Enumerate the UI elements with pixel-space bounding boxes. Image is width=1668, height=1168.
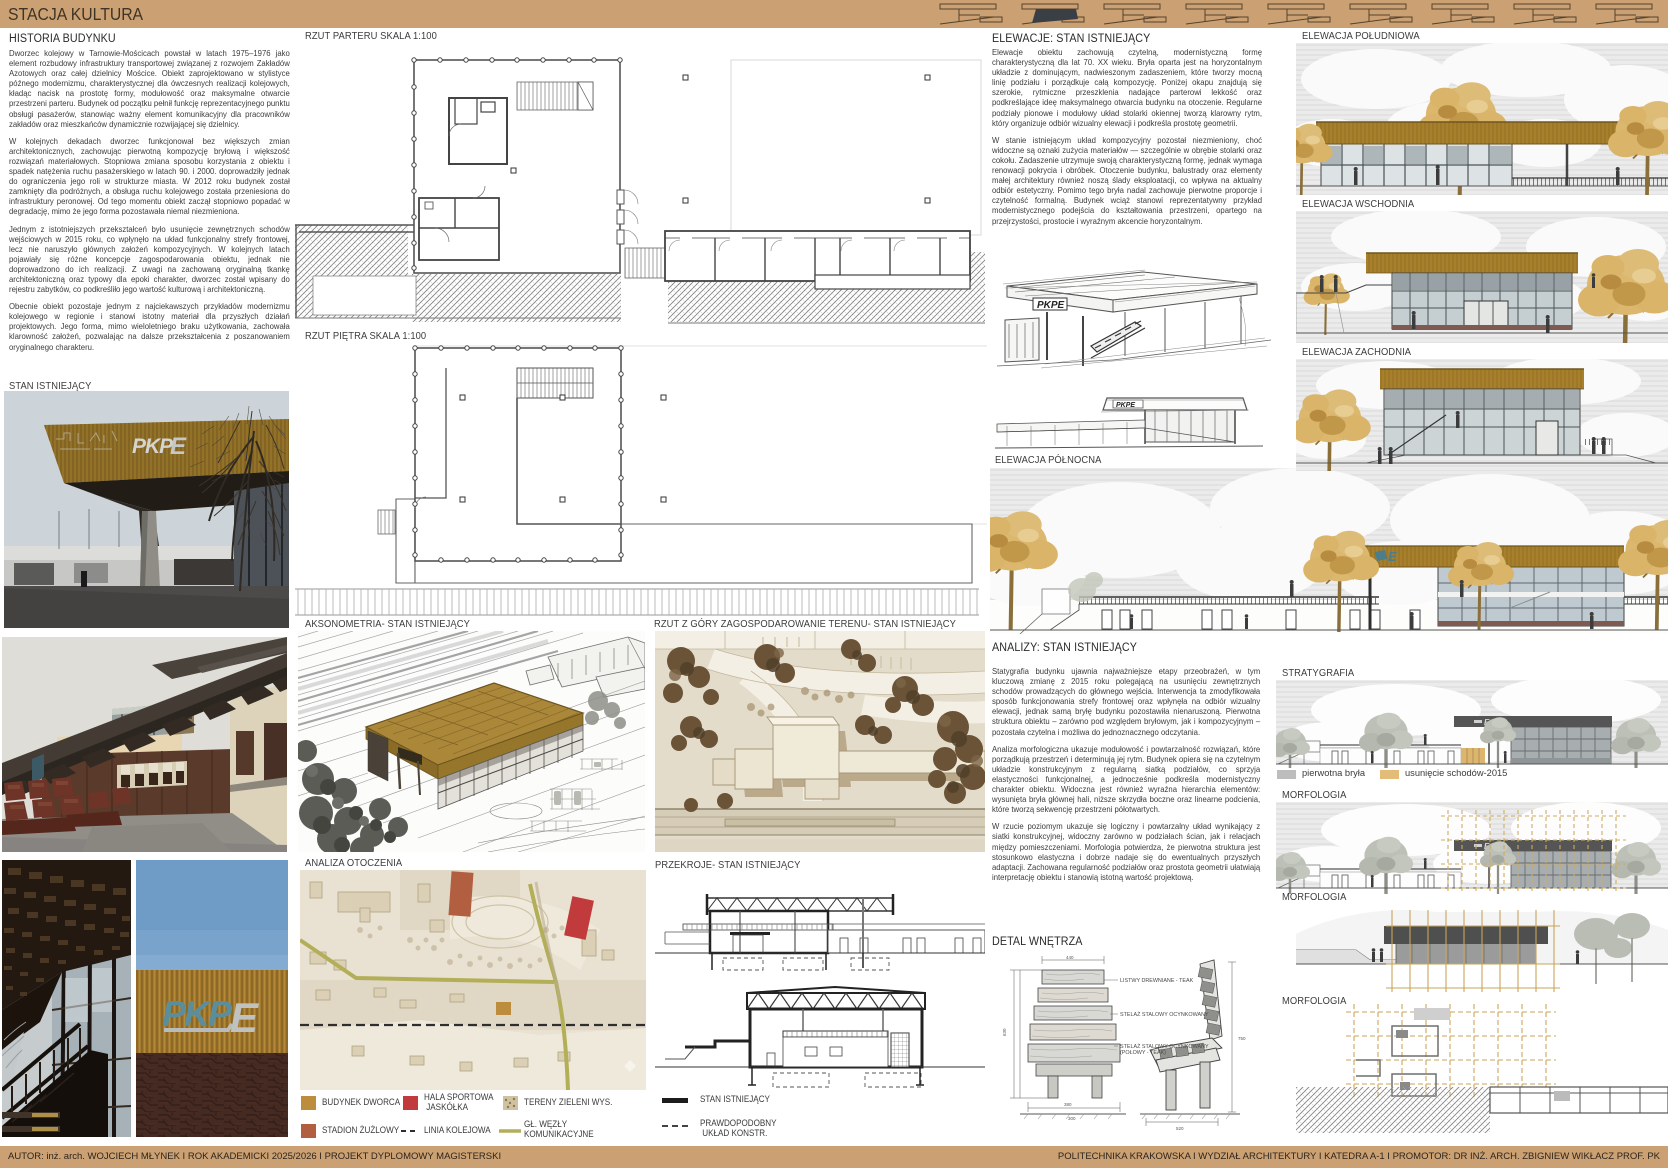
svg-text:PKPE: PKPE bbox=[1037, 300, 1065, 311]
svg-text:PKPE: PKPE bbox=[1116, 402, 1135, 409]
svg-text:440: 440 bbox=[1066, 955, 1074, 960]
svg-text:E: E bbox=[170, 433, 187, 460]
svg-text:E: E bbox=[1388, 549, 1397, 564]
svg-text:520: 520 bbox=[1176, 1126, 1184, 1131]
svg-text:E: E bbox=[230, 994, 260, 1041]
svg-text:LISTWY DREWNIANE - TEAK: LISTWY DREWNIANE - TEAK bbox=[1120, 978, 1194, 984]
svg-text:STELAŻ STALOWY OCYNKOWANY: STELAŻ STALOWY OCYNKOWANY bbox=[1120, 1043, 1209, 1050]
svg-text:(POŁOWY - TEAK): (POŁOWY - TEAK) bbox=[1120, 1050, 1166, 1056]
svg-text:PKP: PKP bbox=[132, 435, 174, 458]
svg-text:380: 380 bbox=[1064, 1102, 1072, 1107]
svg-text:STELAŻ STALOWY OCYNKOWANY: STELAŻ STALOWY OCYNKOWANY bbox=[1120, 1011, 1209, 1018]
svg-text:300: 300 bbox=[1068, 1116, 1076, 1121]
svg-text:750: 750 bbox=[1238, 1036, 1246, 1041]
svg-text:630: 630 bbox=[1002, 1028, 1007, 1036]
svg-text:PKP: PKP bbox=[162, 993, 233, 1034]
